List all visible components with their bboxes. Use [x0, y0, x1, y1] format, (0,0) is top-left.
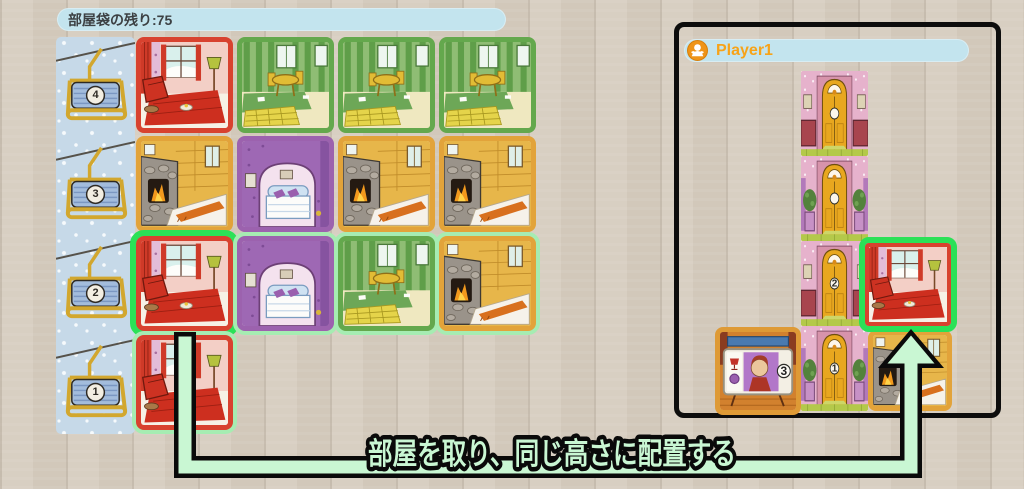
market-room-tile-selected[interactable]: [136, 236, 233, 331]
room-art: [343, 141, 430, 227]
market-room-tile[interactable]: [439, 236, 536, 331]
market-room-tile[interactable]: [237, 136, 334, 232]
room-art: [141, 241, 228, 326]
room-art: [242, 42, 329, 128]
market-room-tile[interactable]: [439, 136, 536, 232]
chairlift-tile: 3: [56, 136, 135, 235]
market-room-tile[interactable]: [439, 37, 536, 133]
entrance-floor-number: 1: [832, 363, 838, 374]
market-room-tile[interactable]: [237, 236, 334, 331]
room-art: [869, 247, 947, 322]
tower-entrance-tile: 2: [801, 241, 868, 326]
room-art: [242, 141, 329, 227]
room-art: [444, 42, 531, 128]
chairlift-number: 1: [92, 386, 98, 398]
player-new-room-tile: [865, 243, 951, 326]
room-bag-counter: 部屋袋の残り:75: [57, 8, 506, 31]
room-art: [141, 340, 228, 425]
chairlift-icon: [56, 235, 135, 334]
entrance-floor-number: 2: [832, 278, 838, 289]
market-room-tile[interactable]: [136, 37, 233, 133]
player-meeple-icon: [687, 40, 708, 61]
room-art: [444, 241, 531, 326]
market-room-tile[interactable]: [338, 37, 435, 133]
market-room-tile[interactable]: [237, 37, 334, 133]
chairlift-number: 3: [92, 188, 98, 200]
room-art: [343, 241, 430, 326]
player-name: Player1: [710, 42, 773, 60]
tower-entrance-tile: [801, 71, 868, 156]
character-card: 3: [715, 327, 801, 415]
room-art: [343, 42, 430, 128]
character-card-number: 3: [780, 364, 787, 378]
chairlift-icon: [56, 37, 135, 136]
placed-room-highlight: [859, 237, 957, 332]
chairlift-column: 4 3 2 1: [56, 37, 135, 434]
market-room-tile[interactable]: [338, 136, 435, 232]
chairlift-icon: [56, 334, 135, 433]
market-room-tile[interactable]: [136, 335, 233, 430]
chairlift-tile: 1: [56, 334, 135, 433]
entrance-art: [801, 71, 868, 156]
market-room-tile[interactable]: [136, 136, 233, 232]
tower-entrance-tile: 1: [801, 326, 868, 411]
instruction-text: 部屋を取り、同じ高さに配置する: [368, 437, 736, 471]
room-art: [873, 335, 947, 406]
room-art: [444, 141, 531, 227]
player-placed-room-tile: [868, 330, 952, 411]
room-art: [141, 141, 228, 227]
chairlift-tile: 4: [56, 37, 135, 136]
room-art: [141, 42, 228, 128]
game-screen: 部屋袋の残り:75 4 3 2 1: [0, 0, 1024, 489]
player-name-pill: Player1: [684, 39, 969, 62]
chairlift-icon: [56, 136, 135, 235]
chairlift-tile: 2: [56, 235, 135, 334]
tower-entrance-tile: [801, 156, 868, 241]
entrance-art: [801, 156, 868, 241]
room-bag-counter-label: 部屋袋の残り:75: [57, 10, 172, 30]
chairlift-number: 4: [92, 89, 98, 101]
chairlift-number: 2: [92, 287, 98, 299]
market-room-tile[interactable]: [338, 236, 435, 331]
room-art: [242, 241, 329, 326]
